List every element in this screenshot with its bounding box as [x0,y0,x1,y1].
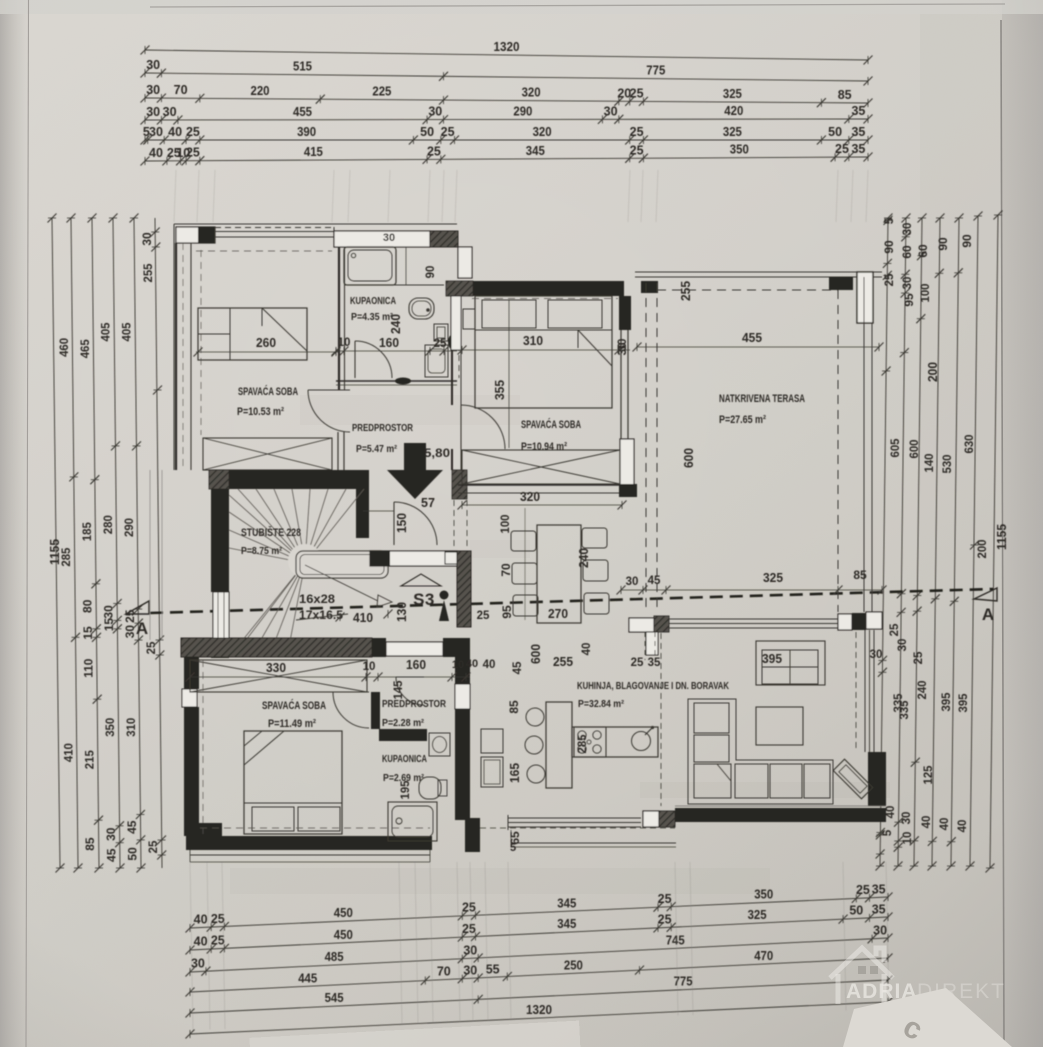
svg-text:5: 5 [884,217,896,224]
svg-text:285: 285 [59,547,73,566]
svg-text:255: 255 [553,655,573,669]
svg-text:45: 45 [512,661,524,674]
svg-text:25: 25 [186,146,200,160]
svg-text:30: 30 [163,105,177,119]
svg-text:30: 30 [604,104,618,118]
svg-text:30: 30 [146,58,160,72]
svg-text:30: 30 [428,105,442,119]
svg-text:60: 60 [916,244,930,258]
svg-text:455: 455 [742,331,762,345]
svg-text:600: 600 [529,644,543,664]
svg-text:90: 90 [936,237,950,251]
svg-text:10: 10 [363,661,376,673]
svg-text:110: 110 [81,658,95,677]
svg-text:P=11.49 m²: P=11.49 m² [268,718,316,730]
svg-text:775: 775 [646,64,665,78]
svg-text:STUBIŠTE 228: STUBIŠTE 228 [241,526,301,539]
svg-text:220: 220 [251,84,270,98]
svg-text:35: 35 [648,657,661,669]
svg-text:PREDPROSTOR: PREDPROSTOR [382,698,446,710]
svg-text:215: 215 [82,750,96,769]
svg-text:545: 545 [325,991,344,1005]
svg-text:30: 30 [383,232,395,244]
svg-text:320: 320 [520,490,540,504]
svg-text:30: 30 [870,649,883,661]
svg-text:40: 40 [149,146,163,160]
svg-text:25: 25 [889,623,901,636]
svg-text:KUHINJA, BLAGOVANJE I DN. BORA: KUHINJA, BLAGOVANJE I DN. BORAVAK [577,680,729,692]
svg-text:240: 240 [577,548,591,568]
svg-text:25: 25 [427,144,441,158]
svg-text:5,80: 5,80 [424,446,450,460]
svg-text:25: 25 [434,338,447,350]
svg-text:50: 50 [849,904,863,918]
svg-text:SPAVAĆA SOBA: SPAVAĆA SOBA [521,418,581,431]
svg-text:320: 320 [522,86,541,100]
svg-text:40: 40 [939,818,951,831]
svg-text:30: 30 [149,125,163,139]
svg-text:160: 160 [379,336,399,350]
svg-text:10: 10 [452,659,464,671]
svg-text:320: 320 [533,125,552,139]
svg-text:140: 140 [922,453,936,472]
svg-text:30: 30 [626,576,639,588]
svg-text:40: 40 [921,816,933,829]
svg-text:395: 395 [762,652,782,666]
svg-text:40: 40 [957,820,969,833]
svg-text:30: 30 [617,339,629,352]
svg-text:25: 25 [630,86,644,100]
svg-text:745: 745 [666,933,685,947]
svg-text:290: 290 [513,105,532,119]
svg-text:35: 35 [872,902,886,916]
svg-text:85: 85 [838,88,852,102]
svg-text:30: 30 [902,223,914,236]
svg-text:40: 40 [483,659,496,671]
svg-text:30: 30 [873,923,887,937]
svg-text:345: 345 [557,896,576,910]
svg-text:255: 255 [141,263,155,282]
svg-text:605: 605 [888,438,902,457]
svg-text:350: 350 [730,143,749,157]
svg-text:30: 30 [901,812,913,825]
svg-text:16x28: 16x28 [299,592,335,606]
svg-text:405: 405 [99,322,113,341]
svg-text:30: 30 [104,827,118,841]
svg-text:40: 40 [885,806,897,819]
svg-text:450: 450 [334,928,353,942]
svg-text:60: 60 [900,245,914,259]
svg-text:25: 25 [884,273,896,286]
svg-text:485: 485 [325,950,344,964]
svg-text:775: 775 [674,975,693,989]
svg-text:415: 415 [304,145,323,159]
svg-text:325: 325 [723,87,742,101]
svg-text:25: 25 [186,125,200,139]
svg-text:30: 30 [897,639,909,652]
svg-text:57: 57 [421,496,435,510]
svg-text:85: 85 [507,700,521,714]
svg-text:250: 250 [564,958,583,972]
svg-text:25: 25 [631,657,644,669]
svg-text:600: 600 [682,448,696,468]
svg-text:40: 40 [466,658,478,670]
svg-text:410: 410 [61,743,75,762]
svg-text:70: 70 [437,965,451,979]
svg-text:25: 25 [658,892,672,906]
svg-text:530: 530 [940,454,954,473]
svg-text:35: 35 [851,104,865,118]
svg-text:45: 45 [648,575,661,587]
svg-text:35: 35 [851,125,865,139]
svg-text:390: 390 [297,125,316,139]
svg-text:50: 50 [828,125,842,139]
svg-text:45: 45 [125,820,139,834]
svg-text:255: 255 [679,281,693,301]
svg-text:350: 350 [103,717,117,736]
svg-text:40: 40 [194,935,208,949]
svg-text:P=10.53 m²: P=10.53 m² [237,406,284,418]
svg-text:270: 270 [548,607,568,621]
svg-text:335: 335 [897,700,911,719]
svg-text:185: 185 [80,522,94,541]
svg-text:30: 30 [102,605,116,619]
svg-text:325: 325 [748,908,767,922]
svg-text:1320: 1320 [526,1003,552,1017]
svg-text:PREDPROSTOR: PREDPROSTOR [352,422,413,434]
svg-text:30: 30 [146,105,160,119]
svg-text:420: 420 [724,104,743,118]
svg-text:330: 330 [266,661,286,675]
svg-text:25: 25 [856,883,870,897]
svg-text:395: 395 [939,692,953,711]
svg-text:5: 5 [882,829,894,836]
svg-text:90: 90 [882,240,896,254]
svg-text:515: 515 [293,60,312,74]
svg-text:80: 80 [81,599,95,613]
svg-text:P=4.35 m²: P=4.35 m² [351,311,393,323]
svg-text:KUPAONICA: KUPAONICA [382,753,427,765]
svg-text:35: 35 [851,142,865,156]
svg-text:25: 25 [211,934,225,948]
svg-text:A: A [982,605,994,624]
svg-text:70: 70 [174,83,188,97]
svg-text:70: 70 [499,563,513,577]
svg-text:410: 410 [353,611,373,625]
svg-text:30: 30 [140,232,154,246]
svg-text:350: 350 [754,888,773,902]
svg-text:195: 195 [400,780,412,800]
svg-text:310: 310 [124,717,138,736]
svg-text:25: 25 [462,922,476,936]
svg-text:40: 40 [168,125,182,139]
svg-text:325: 325 [723,125,742,139]
svg-text:55: 55 [486,962,500,976]
svg-text:P=5.47 m²: P=5.47 m² [356,443,397,455]
svg-text:310: 310 [523,334,543,348]
svg-text:285: 285 [577,734,589,754]
svg-text:40: 40 [194,913,208,927]
svg-text:145: 145 [393,680,405,700]
svg-text:455: 455 [293,105,312,119]
svg-text:1155: 1155 [995,524,1009,550]
svg-text:25: 25 [658,913,672,927]
svg-text:405: 405 [120,322,134,341]
svg-text:30: 30 [463,943,477,957]
svg-text:325: 325 [763,571,783,585]
svg-text:165: 165 [508,763,522,783]
svg-text:25: 25 [913,651,925,664]
svg-text:S3: S3 [413,590,435,609]
svg-text:95: 95 [500,605,514,619]
svg-text:15: 15 [102,618,116,632]
svg-text:85: 85 [853,568,867,582]
svg-text:460: 460 [57,338,71,357]
svg-text:130: 130 [395,602,409,622]
svg-text:25: 25 [462,901,476,915]
svg-text:5: 5 [510,842,516,854]
svg-text:30: 30 [902,277,914,290]
svg-text:345: 345 [526,144,545,158]
svg-text:260: 260 [256,336,276,350]
svg-text:150: 150 [395,513,409,533]
svg-text:90: 90 [960,234,974,248]
svg-text:1320: 1320 [494,40,520,54]
svg-text:30: 30 [463,963,477,977]
svg-text:470: 470 [754,949,773,963]
svg-text:P=10.94 m²: P=10.94 m² [521,441,567,453]
svg-text:NATKRIVENA TERASA: NATKRIVENA TERASA [719,393,805,405]
svg-text:30: 30 [191,957,205,971]
svg-text:KUPAONICA: KUPAONICA [350,295,396,307]
svg-text:50: 50 [420,125,434,139]
svg-text:630: 630 [962,434,976,453]
svg-text:15: 15 [81,626,95,640]
svg-text:225: 225 [372,85,391,99]
svg-text:P=2.28 m²: P=2.28 m² [382,717,424,729]
svg-text:200: 200 [975,539,989,558]
svg-text:290: 290 [122,518,136,537]
svg-text:100: 100 [918,283,932,302]
svg-text:345: 345 [557,917,576,931]
svg-text:395: 395 [956,693,970,712]
svg-text:35: 35 [872,882,886,896]
svg-text:160: 160 [406,658,426,672]
svg-text:10: 10 [338,337,351,349]
svg-text:25: 25 [146,641,158,654]
svg-text:85: 85 [83,837,97,851]
svg-text:450: 450 [334,906,353,920]
svg-text:P=27.65 m²: P=27.65 m² [719,414,766,426]
svg-text:SPAVAĆA SOBA: SPAVAĆA SOBA [238,385,298,398]
svg-text:25: 25 [148,840,160,853]
svg-text:280: 280 [101,515,115,534]
svg-text:100: 100 [498,514,512,533]
svg-text:25: 25 [441,125,455,139]
svg-text:90: 90 [425,266,437,279]
svg-text:50: 50 [125,847,139,861]
svg-text:465: 465 [78,339,92,358]
svg-text:95: 95 [902,293,916,307]
svg-text:30: 30 [146,83,160,97]
svg-text:25: 25 [835,142,849,156]
svg-text:25: 25 [630,143,644,157]
svg-text:240: 240 [915,680,929,699]
svg-text:P=32.84 m²: P=32.84 m² [578,698,624,710]
svg-text:445: 445 [298,971,317,985]
svg-text:A: A [136,619,148,638]
svg-text:240: 240 [389,314,403,334]
svg-text:45: 45 [104,848,118,862]
svg-text:25: 25 [477,610,490,622]
svg-text:SPAVAĆA SOBA: SPAVAĆA SOBA [262,699,326,712]
svg-text:355: 355 [493,380,507,400]
svg-text:40: 40 [581,643,593,656]
svg-text:25: 25 [630,125,644,139]
svg-text:P=8.75 m²: P=8.75 m² [241,545,282,557]
